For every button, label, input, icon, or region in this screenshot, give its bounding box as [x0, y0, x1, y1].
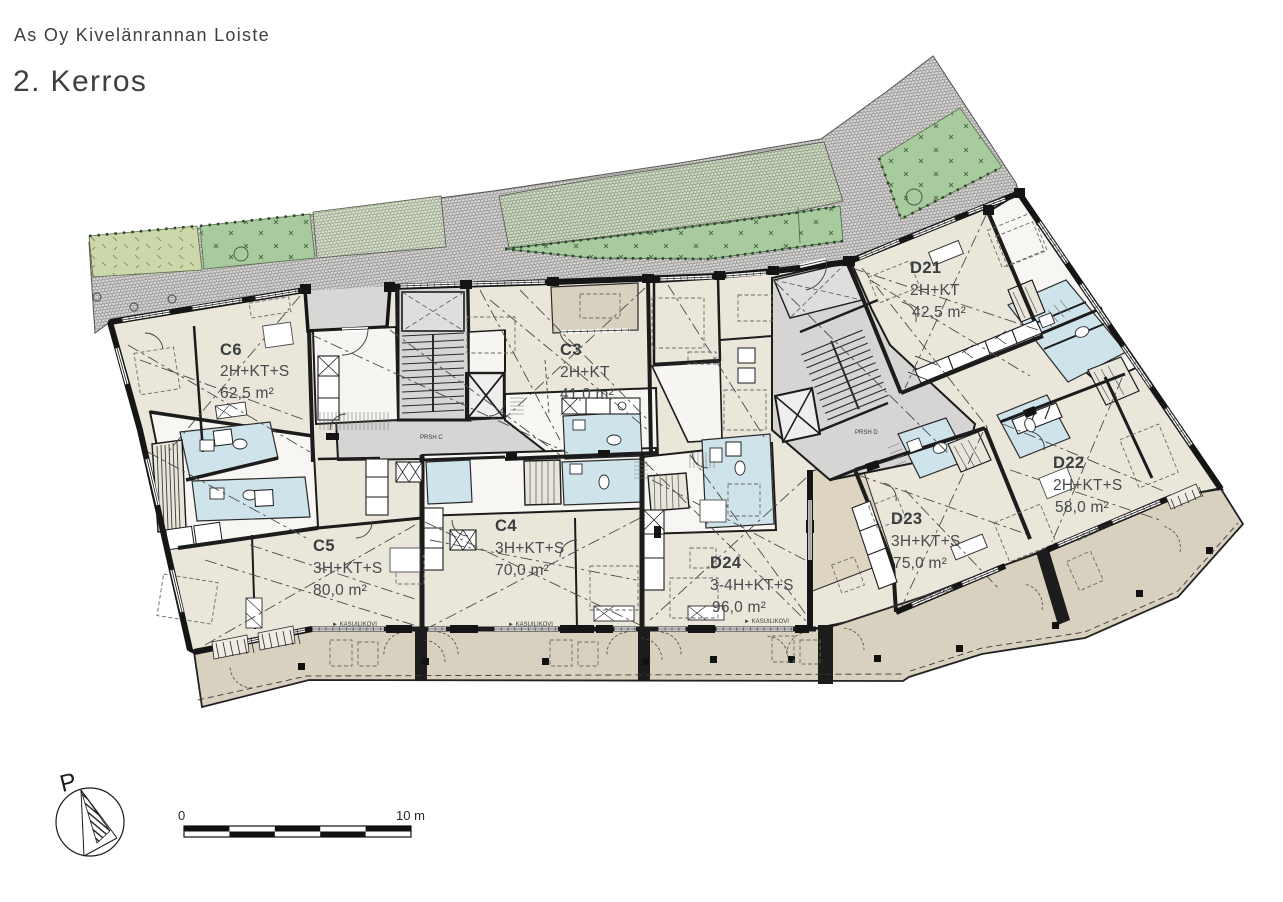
- svg-text:► KASUILIKOVI: ► KASUILIKOVI: [744, 619, 789, 625]
- svg-text:2H+KT: 2H+KT: [910, 282, 960, 299]
- svg-text:42,5 m²: 42,5 m²: [912, 304, 966, 321]
- svg-text:75,0 m²: 75,0 m²: [893, 555, 947, 572]
- svg-text:C4: C4: [495, 517, 517, 535]
- svg-text:0: 0: [178, 808, 185, 823]
- svg-text:3H+KT+S: 3H+KT+S: [313, 560, 382, 577]
- svg-text:2H+KT: 2H+KT: [560, 364, 610, 381]
- svg-text:3H+KT+S: 3H+KT+S: [495, 540, 564, 557]
- svg-text:C5: C5: [313, 537, 335, 555]
- svg-text:70,0 m²: 70,0 m²: [495, 562, 549, 579]
- svg-text:58,0 m²: 58,0 m²: [1055, 499, 1109, 516]
- svg-text:96,0 m²: 96,0 m²: [712, 599, 766, 616]
- svg-text:C6: C6: [220, 341, 242, 359]
- svg-text:D22: D22: [1053, 454, 1084, 472]
- svg-text:D21: D21: [910, 259, 941, 277]
- svg-text:PRSH C: PRSH C: [420, 435, 443, 441]
- svg-text:3-4H+KT+S: 3-4H+KT+S: [710, 577, 794, 594]
- svg-text:D23: D23: [891, 510, 922, 528]
- svg-text:41,0 m²: 41,0 m²: [560, 386, 614, 403]
- svg-text:C3: C3: [560, 341, 582, 359]
- svg-text:2H+KT+S: 2H+KT+S: [1053, 477, 1122, 494]
- svg-text:2. Kerros: 2. Kerros: [13, 65, 147, 98]
- svg-text:PRSH D: PRSH D: [855, 430, 878, 436]
- svg-text:As Oy Kivelänrannan Loiste: As Oy Kivelänrannan Loiste: [14, 25, 270, 45]
- svg-text:► KASUILIKOVI: ► KASUILIKOVI: [332, 622, 377, 628]
- svg-text:► KASUILIKOVI: ► KASUILIKOVI: [508, 622, 553, 628]
- svg-text:80,0 m²: 80,0 m²: [313, 582, 367, 599]
- svg-text:62,5 m²: 62,5 m²: [220, 385, 274, 402]
- svg-text:3H+KT+S: 3H+KT+S: [891, 533, 960, 550]
- svg-text:2H+KT+S: 2H+KT+S: [220, 363, 289, 380]
- svg-text:D24: D24: [710, 554, 742, 572]
- svg-text:10 m: 10 m: [396, 808, 425, 823]
